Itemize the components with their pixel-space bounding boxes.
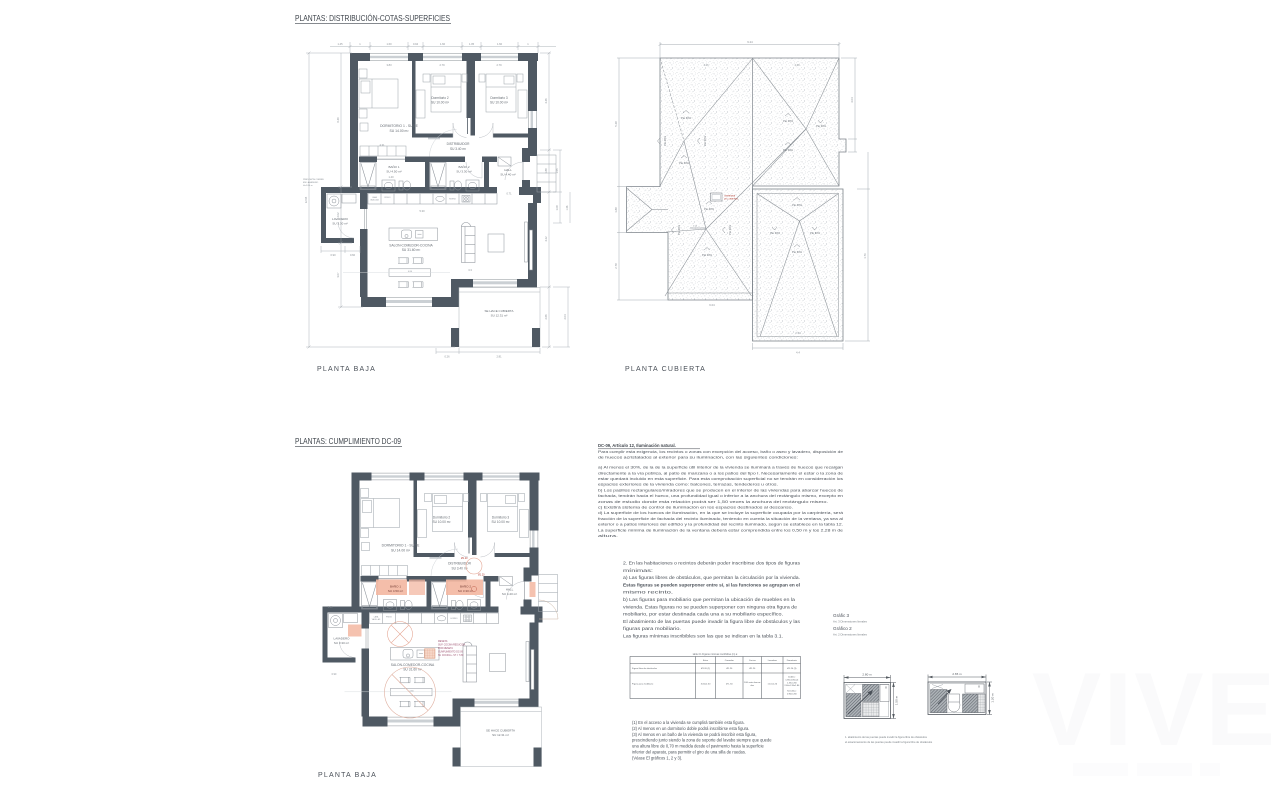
svg-text:1.90x1.80 (2): 1.90x1.80 (2) (785, 679, 798, 681)
svg-text:1.40: 1.40 (388, 175, 394, 179)
svg-text:0.71: 0.71 (506, 192, 512, 196)
svg-text:4.22: 4.22 (544, 236, 548, 242)
svg-text:SU 4.40 m²: SU 4.40 m² (500, 172, 515, 176)
svg-text:Lavadero: Lavadero (768, 659, 778, 662)
svg-text:PREVISIÓN CIERRE: PREVISIÓN CIERRE (303, 178, 324, 181)
svg-text:1.45: 1.45 (328, 606, 333, 609)
svg-text:SU 10.00 m²: SU 10.00 m² (490, 101, 508, 105)
svg-text:VIVE: VIVE (1032, 652, 1277, 768)
svg-text:1.10x1.20: 1.10x1.20 (767, 684, 777, 686)
svg-text:0.26: 0.26 (444, 355, 450, 359)
svg-text:PLANTAS: DISTRIBUCIÓN-COTAS-SU: PLANTAS: DISTRIBUCIÓN-COTAS-SUPERFICIES (295, 13, 450, 23)
svg-text:DC-09, Artículo 12, Iluminació: DC-09, Artículo 12, Iluminación natural. (598, 443, 676, 448)
svg-text:SU 3.30 m²: SU 3.30 m² (458, 589, 473, 593)
svg-text:Pte 30%: Pte 30% (792, 250, 802, 254)
svg-text:Ø1.20: Ø1.20 (461, 557, 468, 560)
svg-text:(3) Al menos en un baño de la: (3) Al menos en un baño de la vivienda s… (632, 732, 756, 737)
svg-text:b) Las figuras para mobiliario: b) Las figuras para mobiliario que permi… (623, 597, 796, 602)
svg-text:SU 4.50 m²: SU 4.50 m² (388, 589, 403, 593)
svg-text:(Véase El gráficos 1, 2 y 3).: (Véase El gráficos 1, 2 y 3). (632, 755, 682, 760)
svg-text:Figura libre de obstáculos: Figura libre de obstáculos (632, 667, 658, 670)
svg-text:Pte 30%: Pte 30% (783, 119, 793, 123)
svg-text:1.45: 1.45 (337, 42, 343, 46)
svg-text:Pte 30%: Pte 30% (792, 203, 802, 207)
svg-text:Gráfico 2: Gráfico 2 (833, 626, 852, 631)
svg-text:SU 4.50 m²: SU 4.50 m² (386, 169, 401, 173)
svg-text:SU COCINA + ST = 7.80: SU COCINA + ST = 7.80 (438, 654, 464, 657)
svg-text:Dormitorio 3: Dormitorio 3 (490, 96, 508, 100)
svg-text:mismo recinto.: mismo recinto. (623, 590, 673, 595)
svg-text:4.4: 4.4 (796, 351, 800, 355)
svg-text:Estar: Estar (703, 659, 708, 662)
svg-text:2.54: 2.54 (795, 331, 801, 335)
svg-text:12.95: 12.95 (304, 196, 308, 203)
svg-text:estar quedará incluido en esta: estar quedará incluido en esta superfici… (598, 477, 843, 481)
svg-text:zonas de estudio donde esta re: zonas de estudio donde esta relación pod… (598, 500, 828, 504)
svg-text:2.60x1.35x1.80: 2.60x1.35x1.80 (784, 685, 800, 687)
svg-text:4.46: 4.46 (544, 98, 548, 104)
svg-text:DE CUBIERTA: DE CUBIERTA (724, 198, 738, 201)
svg-text:1.80 entre banca-: 1.80 entre banca- (744, 681, 761, 684)
svg-text:prescindiendo junto siendo la: prescindiendo junto siendo la zona de so… (632, 738, 772, 743)
svg-text:4.28: 4.28 (794, 63, 800, 67)
svg-text:FRIGO: FRIGO (385, 197, 392, 199)
svg-text:BAÑO 1: BAÑO 1 (390, 584, 401, 589)
svg-text:PLANTAS: CUMPLIMIENTO DC-09: PLANTAS: CUMPLIMIENTO DC-09 (295, 437, 401, 446)
svg-text:POR MESETA: POR MESETA (438, 647, 453, 650)
svg-text:0.90: 0.90 (330, 253, 336, 257)
svg-text:1.08: 1.08 (566, 205, 569, 210)
svg-text:Pte 30%: Pte 30% (679, 161, 689, 165)
svg-text:4.31: 4.31 (379, 143, 385, 147)
svg-text:2.78: 2.78 (614, 263, 618, 269)
svg-text:mobiliario, por estar destinad: mobiliario, por estar destinada cada una… (623, 612, 783, 617)
svg-text:2. En las habitaciones o recin: 2. En las habitaciones o recintos deberá… (623, 561, 800, 566)
svg-text:6.49: 6.49 (336, 117, 340, 123)
svg-text:1.60: 1.60 (440, 42, 446, 46)
svg-text:9.24: 9.24 (747, 40, 753, 44)
svg-text:1.20 m: 1.20 m (991, 693, 995, 703)
svg-text:Figura para mobiliario: Figura para mobiliario (632, 683, 654, 686)
svg-text:2.65 m: 2.65 m (952, 672, 962, 676)
svg-text:6.04: 6.04 (709, 303, 715, 307)
svg-text:1.76: 1.76 (863, 253, 867, 259)
svg-text:Pte 30%: Pte 30% (770, 231, 780, 235)
svg-text:5.30: 5.30 (419, 209, 425, 213)
svg-text:H=1.80 m: H=1.80 m (303, 185, 313, 187)
svg-text:PLANTA BAJA: PLANTA BAJA (317, 366, 376, 373)
svg-text:SE HACE CUBIERTA: SE HACE CUBIERTA (485, 309, 514, 313)
svg-text:1.35x1.80: 1.35x1.80 (787, 682, 797, 684)
svg-text:(1) En el acceso a la vivienda: (1) En el acceso a la vivienda se cumpli… (632, 720, 745, 725)
svg-text:EN LAVADERO: EN LAVADERO (303, 181, 319, 184)
svg-text:1. abatimiento de las puertas: 1. abatimiento de las puertas puede inva… (845, 735, 928, 739)
svg-text:mínimas:: mínimas: (623, 568, 653, 573)
svg-text:2.79: 2.79 (439, 63, 445, 67)
svg-text:1.60: 1.60 (497, 42, 503, 46)
svg-text:Pte 30%: Pte 30% (703, 135, 707, 145)
svg-text:Dobles:: Dobles: (788, 677, 796, 679)
svg-text:el estacionamiento de las puer: el estacionamiento de las puertas puede … (845, 740, 933, 744)
svg-text:0.90: 0.90 (332, 673, 337, 676)
svg-text:1.60: 1.60 (386, 42, 392, 46)
svg-text:SU 3.30 m²: SU 3.30 m² (456, 169, 471, 173)
svg-text:DORMITORIO 1 - SUITE: DORMITORIO 1 - SUITE (380, 124, 419, 128)
svg-text:Para cumplir esta exigencia, l: Para cumplir esta exigencia, los recinto… (598, 450, 843, 454)
svg-text:Art. 3 Dimensiones lineales: Art. 3 Dimensiones lineales (833, 620, 867, 624)
svg-text:SUP. COCINA REDUCIDA: SUP. COCINA REDUCIDA (438, 644, 466, 647)
svg-text:LAVA: LAVA (372, 196, 377, 199)
svg-text:SU 3.40 m²: SU 3.40 m² (450, 147, 466, 151)
svg-text:Ø1.20: Ø1.20 (478, 574, 485, 577)
svg-text:0.94: 0.94 (413, 42, 419, 46)
svg-text:SU 12.31 m²: SU 12.31 m² (491, 314, 508, 318)
svg-text:1.05: 1.05 (469, 42, 475, 46)
svg-text:Ø1.20: Ø1.20 (726, 668, 733, 670)
svg-text:una altura libre de 0,70 m med: una altura libre de 0,70 m medida desde … (632, 744, 764, 749)
svg-text:BAÑO 2: BAÑO 2 (458, 164, 469, 169)
svg-text:Pte 30%: Pte 30% (728, 224, 732, 234)
svg-text:CUMPLIMIENTO DC-09: CUMPLIMIENTO DC-09 (438, 652, 464, 654)
svg-text:El abatimiento de las puertas: El abatimiento de las puertas puede inva… (623, 619, 800, 624)
svg-text:tabla 3.1 Figuras mínimas ins: tabla 3.1 Figuras mínimas inscribibles (… (693, 653, 738, 656)
svg-text:HALL: HALL (504, 168, 512, 172)
svg-text:VAJILLAS: VAJILLAS (370, 198, 379, 201)
svg-text:PLANTA CUBIERTA: PLANTA CUBIERTA (625, 366, 706, 373)
svg-text:Dormitorio 2: Dormitorio 2 (431, 96, 449, 100)
svg-text:LAVADERO: LAVADERO (332, 217, 349, 221)
svg-text:fracción de la superficie de f: fracción de la superficie de fachada del… (598, 517, 843, 521)
svg-text:Estas figuras se pueden superp: Estas figuras se pueden superponer entre… (623, 582, 800, 587)
svg-text:inferior del aparato, para per: inferior del aparato, para permitir el g… (632, 750, 746, 755)
svg-text:Pte 30%: Pte 30% (783, 148, 793, 152)
svg-text:espacios exteriores de la vivi: espacios exteriores de la vivienda como:… (598, 483, 778, 487)
svg-text:Pte 30%: Pte 30% (702, 253, 712, 257)
svg-text:Las figuras mínimas inscribibl: Las figuras mínimas inscribibles son las… (623, 634, 783, 639)
svg-text:SU 31.60 m²: SU 31.60 m² (402, 248, 421, 252)
svg-text:c) Existirá sistema de control: c) Existirá sistema de control de ilumin… (598, 506, 793, 510)
svg-text:exterior o a patios interiores: exterior o a patios interiores del edifi… (598, 523, 843, 527)
svg-text:4.46: 4.46 (703, 63, 709, 67)
svg-text:Pte 30%: Pte 30% (677, 224, 681, 234)
svg-text:1.88: 1.88 (544, 168, 548, 174)
svg-text:a) Las figuras libres de obstá: a) Las figuras libres de obstáculos, que… (623, 575, 800, 580)
svg-text:PLANTA BAJA: PLANTA BAJA (318, 772, 377, 779)
svg-text:Pte 30%: Pte 30% (810, 231, 820, 235)
svg-text:vivienda. Estas figuras no se: vivienda. Estas figuras no se pueden sup… (623, 604, 798, 609)
svg-text:Dormitorio: Dormitorio (787, 659, 798, 662)
svg-text:Cocina: Cocina (749, 660, 757, 662)
svg-text:0.90x1.80: 0.90x1.80 (787, 694, 797, 696)
svg-text:Art. 2 Dimensiones lineales: Art. 2 Dimensiones lineales (833, 632, 867, 636)
svg-text:0.60: 0.60 (350, 253, 356, 257)
svg-text:1.08: 1.08 (555, 205, 559, 211)
svg-text:CHIMENEA: CHIMENEA (724, 195, 736, 198)
svg-text:2.02: 2.02 (336, 212, 340, 218)
svg-text:(2) Al menos en un dormitorio: (2) Al menos en un dormitorio doble podr… (632, 726, 749, 731)
svg-text:5.28: 5.28 (614, 121, 618, 127)
svg-text:Ø 1.50: Ø 1.50 (726, 684, 733, 686)
svg-text:fachada, tendrán hacia el huec: fachada, tendrán hacia el hueco, una pro… (598, 494, 843, 498)
svg-text:Sencillas:: Sencillas: (787, 691, 797, 693)
svg-text:BAÑO 1: BAÑO 1 (388, 164, 399, 169)
svg-text:SU 10.00 m²: SU 10.00 m² (431, 101, 449, 105)
svg-text:Pte 30%: Pte 30% (681, 116, 691, 120)
svg-text:2.79: 2.79 (496, 63, 502, 67)
svg-text:de huecos acristalados al exte: de huecos acristalados al exterior para … (598, 456, 798, 460)
svg-text:Pte 30%: Pte 30% (704, 207, 714, 211)
svg-text:Pte 30%: Pte 30% (663, 135, 667, 145)
svg-text:directamente a la vía pública,: directamente a la vía pública, al patio … (598, 471, 843, 475)
svg-text:Comedor: Comedor (725, 659, 734, 662)
svg-text:DISTRIBUIDOR: DISTRIBUIDOR (447, 142, 471, 146)
svg-text:3.3: 3.3 (468, 268, 472, 272)
svg-text:Ø1.20 (3): Ø1.20 (3) (787, 668, 797, 670)
svg-text:4.04: 4.04 (850, 97, 854, 103)
svg-text:1.50 m: 1.50 m (895, 695, 899, 705)
svg-text:Gráfic 3: Gráfic 3 (833, 613, 850, 618)
svg-text:2.66: 2.66 (544, 314, 548, 320)
svg-text:altura.: altura. (598, 534, 618, 538)
svg-text:b) Los pasillos rectangulares/: b) Los pasillos rectangulares/miradores … (598, 488, 843, 492)
svg-text:2.81: 2.81 (496, 355, 502, 359)
svg-text:SU 3.30 m²: SU 3.30 m² (332, 221, 347, 225)
svg-text:Pte 30%: Pte 30% (816, 124, 826, 128)
svg-text:SALON-COMEDOR-COCINA: SALON-COMEDOR-COCINA (389, 244, 433, 248)
svg-text:HORNO: HORNO (449, 199, 457, 201)
svg-text:SU 14.00 m²: SU 14.00 m² (389, 129, 409, 133)
svg-text:2.80 m: 2.80 m (862, 673, 872, 677)
svg-text:a) Al menos el 30%, de la de l: a) Al menos el 30%, de la de la superfic… (598, 466, 843, 470)
svg-text:figuras para mobiliario.: figuras para mobiliario. (623, 626, 681, 631)
svg-text:1.88: 1.88 (614, 207, 618, 213)
svg-text:MESETA:: MESETA: (438, 640, 448, 643)
svg-text:1.55: 1.55 (555, 168, 559, 174)
svg-text:3.83: 3.83 (386, 63, 392, 67)
svg-text:3.00x2.50: 3.00x2.50 (701, 684, 711, 686)
svg-text:Ø1.20 (1): Ø1.20 (1) (701, 668, 711, 670)
svg-text:La superficie mínima de ilumin: La superficie mínima de iluminación de l… (598, 528, 843, 532)
svg-text:d) La superficie de los huecos: d) La superficie de los huecos de ilumin… (598, 511, 844, 515)
svg-text:Ø1.20: Ø1.20 (749, 668, 756, 670)
svg-text:2.04: 2.04 (563, 314, 567, 320)
svg-text:BAÑO 2: BAÑO 2 (460, 584, 471, 589)
svg-text:3.07: 3.07 (336, 272, 340, 278)
